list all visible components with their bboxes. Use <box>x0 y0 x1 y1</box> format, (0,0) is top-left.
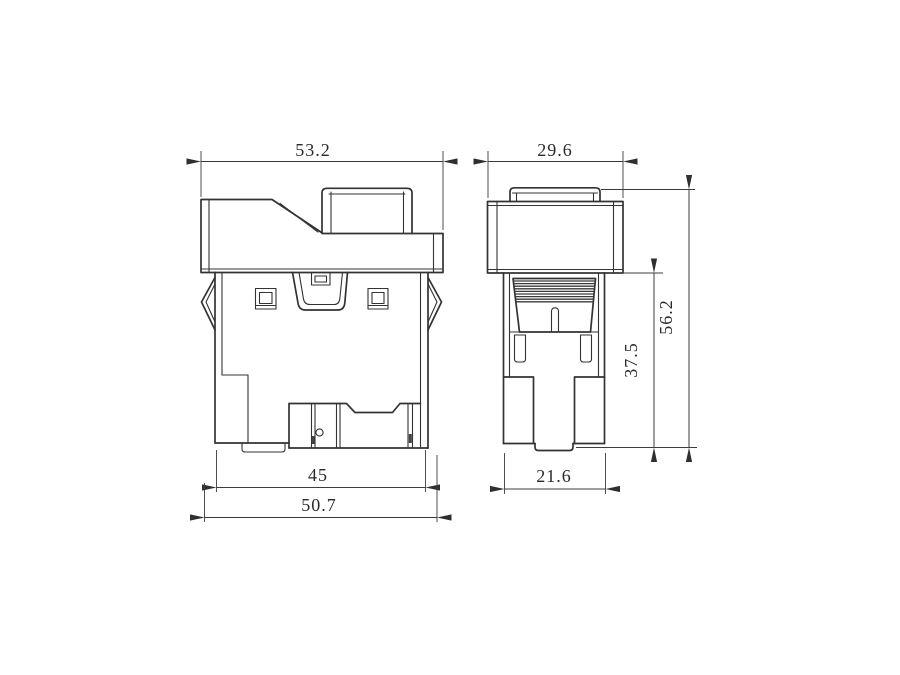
front-rocker-button <box>322 188 412 233</box>
front-recess-top-window-inner <box>315 276 327 282</box>
front-terminal-block <box>289 404 428 449</box>
front-square-window-left <box>256 289 277 310</box>
side-bezel <box>488 202 624 274</box>
front-terminal-mark-right <box>409 434 412 443</box>
front-view <box>201 188 443 452</box>
side-button-cap <box>510 188 600 202</box>
front-center-recess-inner <box>299 273 343 305</box>
dim-front-overall-width-label: 53.2 <box>295 140 331 160</box>
front-square-window-right <box>368 289 388 310</box>
front-rocker-slope-inner <box>280 204 318 233</box>
dimension-annotations: 53.2 29.6 45 50.7 21.6 <box>201 140 697 522</box>
side-wing-left <box>504 377 534 444</box>
dim-side-body-width: 21.6 <box>505 453 606 494</box>
front-screw-hole <box>316 429 323 436</box>
side-bottom-tab <box>535 444 573 451</box>
drawing-sheet: 53.2 29.6 45 50.7 21.6 <box>0 0 900 675</box>
side-slot-left <box>515 335 526 362</box>
side-wing-right <box>575 377 605 444</box>
dim-side-width-label: 29.6 <box>537 140 573 160</box>
dim-total-height-label: 56.2 <box>656 299 676 335</box>
front-mounting-clip-right <box>428 278 442 331</box>
dim-front-flange-width-label: 50.7 <box>301 495 337 515</box>
dim-body-height: 37.5 <box>606 273 663 448</box>
side-view <box>488 188 624 451</box>
front-terminal-mark-left <box>312 436 315 444</box>
front-recess-top-window <box>312 273 331 286</box>
dim-body-height-label: 37.5 <box>621 342 641 378</box>
side-serrations <box>508 281 600 302</box>
technical-drawing: 53.2 29.6 45 50.7 21.6 <box>0 0 900 675</box>
side-slot-right <box>581 335 592 362</box>
dim-front-body-width-label: 45 <box>308 465 328 485</box>
front-mounting-clip-left <box>202 278 216 331</box>
side-center-slot <box>552 308 559 332</box>
dim-side-body-width-label: 21.6 <box>536 466 572 486</box>
front-bottom-lip <box>242 443 285 452</box>
dim-front-body-width: 45 <box>217 450 426 492</box>
dim-total-height: 56.2 <box>601 190 695 448</box>
